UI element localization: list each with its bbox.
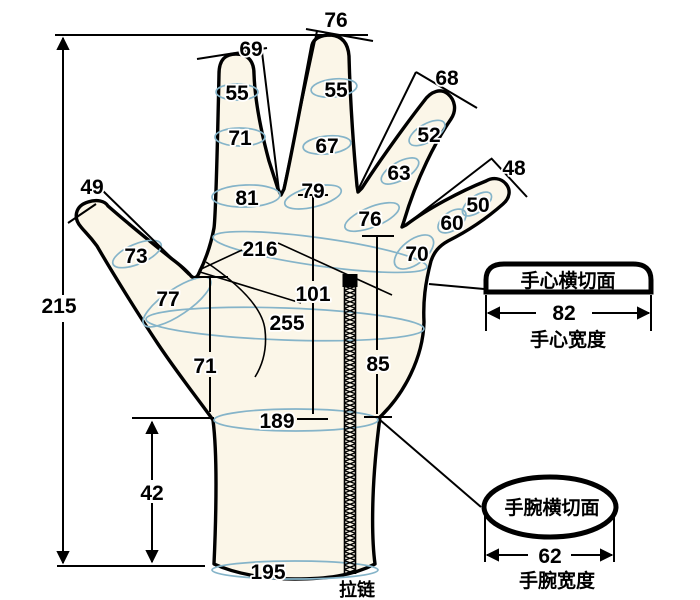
palm-cross-section-label: 手心横切面 [520, 269, 615, 292]
palm-girth-value: 255 [269, 312, 304, 335]
wrist-girth-value: 189 [259, 410, 294, 433]
index-length-value: 69 [239, 38, 262, 61]
knuckle-girth-value: 216 [242, 238, 277, 261]
wrist-width-caption: 手腕宽度 [519, 569, 596, 592]
index-tip-girth-value: 55 [225, 82, 249, 105]
middle-length-value: 76 [324, 9, 347, 32]
glove-measurement-diagram: 215 49 69 76 68 48 73 77 55 71 81 55 67 … [0, 0, 700, 600]
pinky-length-value: 48 [502, 157, 526, 180]
cuff-girth-value: 195 [250, 561, 285, 584]
zipper-teeth [344, 286, 356, 574]
index-base-girth-value: 81 [235, 187, 259, 210]
pinky-tip-girth-value: 50 [466, 194, 489, 217]
palm-section-leader [429, 284, 484, 289]
palm-width-value: 82 [552, 302, 575, 325]
zipper-label: 拉链 [339, 579, 376, 600]
total-length-value: 215 [41, 295, 76, 318]
index-mid-girth-value: 71 [228, 127, 252, 150]
middle-tip-girth-value: 55 [324, 79, 348, 102]
middle-mid-girth-value: 67 [315, 135, 338, 158]
zipper [343, 274, 358, 574]
middle-base-girth-value: 79 [301, 180, 324, 203]
palm-length-value: 101 [295, 283, 330, 306]
wrist-width-value: 62 [538, 545, 561, 568]
zipper-stop [343, 274, 358, 287]
cuff-height-value: 42 [140, 482, 163, 505]
pinky-base-girth-value: 70 [405, 243, 428, 266]
thumb-tip-girth-value: 73 [124, 245, 147, 268]
palm-width-caption: 手心宽度 [530, 328, 607, 351]
thumb-length-value: 49 [80, 176, 103, 199]
pinky-mid-girth-value: 60 [440, 212, 463, 235]
ring-base-girth-value: 76 [358, 208, 381, 231]
ring-mid-girth-value: 63 [387, 162, 410, 185]
ring-tip-girth-value: 52 [417, 124, 440, 147]
ring-length-value: 68 [435, 67, 459, 90]
knuckle-wrist-value: 85 [366, 353, 390, 376]
wrist-cross-section-label: 手腕横切面 [504, 496, 599, 519]
thumb-base-girth-value: 77 [156, 288, 179, 311]
thumb-wrist-value: 71 [193, 355, 217, 378]
wrist-section-leader [380, 420, 481, 507]
